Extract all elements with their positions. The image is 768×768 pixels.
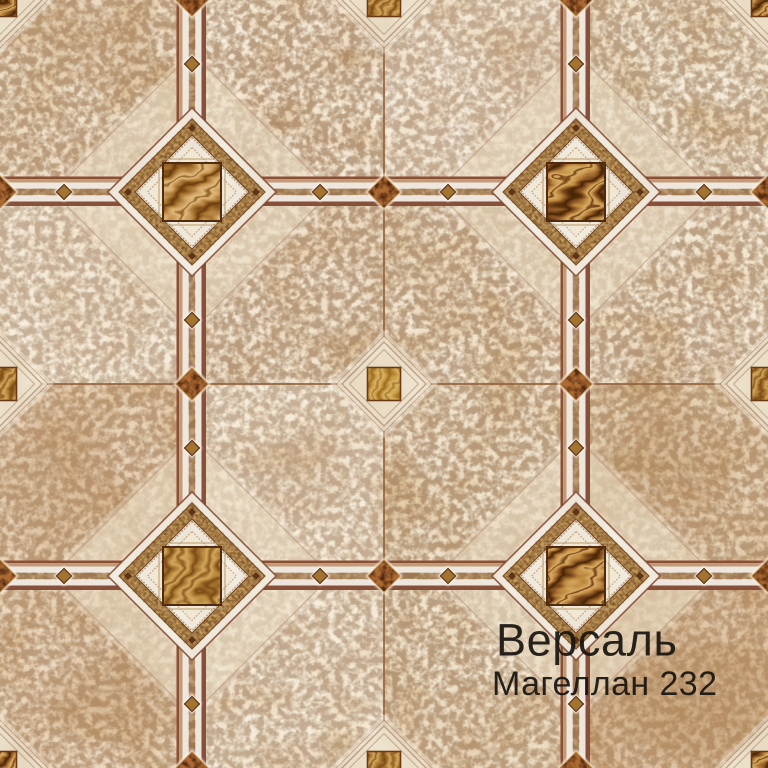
svg-text:Версаль: Версаль	[496, 615, 678, 666]
svg-text:Магеллан 232: Магеллан 232	[492, 665, 717, 703]
